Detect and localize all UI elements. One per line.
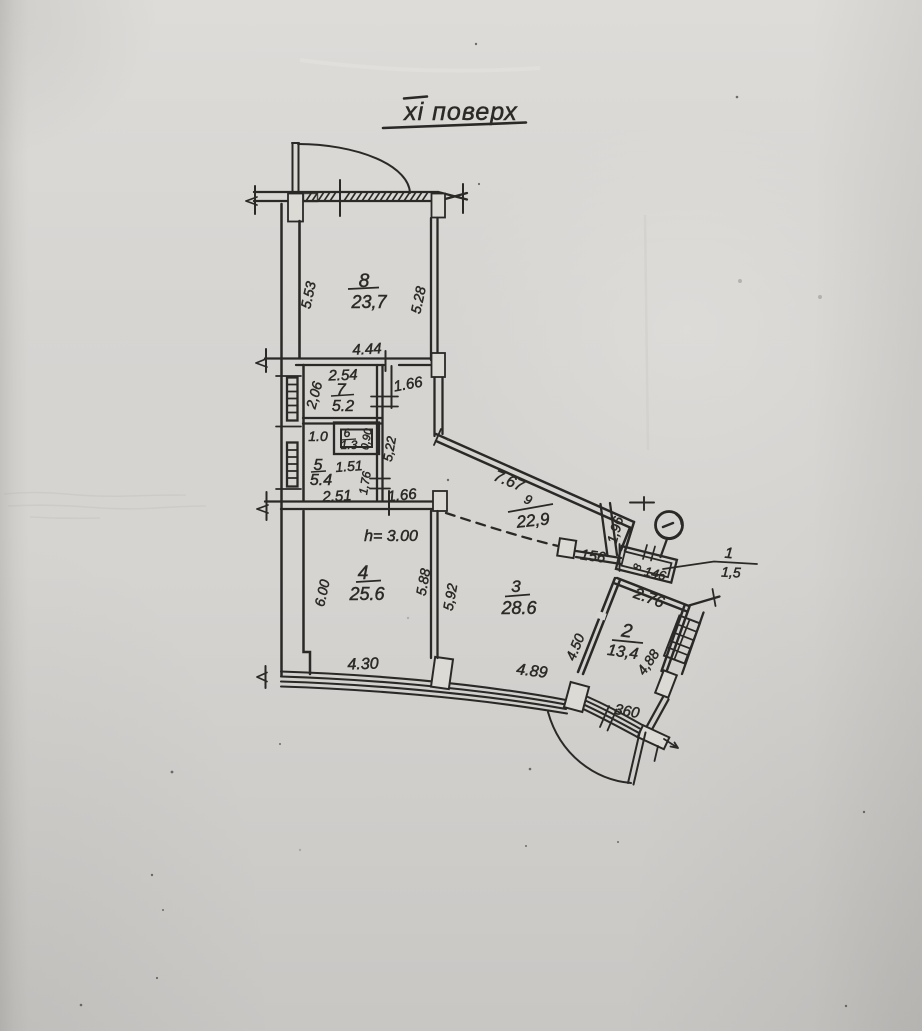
svg-text:22,9: 22,9 <box>515 509 551 532</box>
svg-text:h= 3.00: h= 3.00 <box>364 528 418 545</box>
svg-text:1.66: 1.66 <box>387 485 418 505</box>
svg-text:4.44: 4.44 <box>352 340 382 359</box>
svg-text:156: 156 <box>579 546 607 566</box>
svg-text:25.6: 25.6 <box>348 584 385 604</box>
svg-text:2.51: 2.51 <box>321 487 352 506</box>
svg-text:xі поверх: xі поверх <box>403 98 518 126</box>
svg-text:23,7: 23,7 <box>350 292 387 312</box>
svg-text:1.0: 1.0 <box>308 428 328 444</box>
svg-text:5.2: 5.2 <box>332 398 354 415</box>
svg-text:3: 3 <box>511 577 521 596</box>
svg-text:1,5: 1,5 <box>721 564 741 581</box>
svg-text:5.4: 5.4 <box>310 472 332 489</box>
svg-text:28.6: 28.6 <box>500 598 537 618</box>
svg-text:1: 1 <box>724 545 734 563</box>
svg-text:4.30: 4.30 <box>347 655 379 673</box>
